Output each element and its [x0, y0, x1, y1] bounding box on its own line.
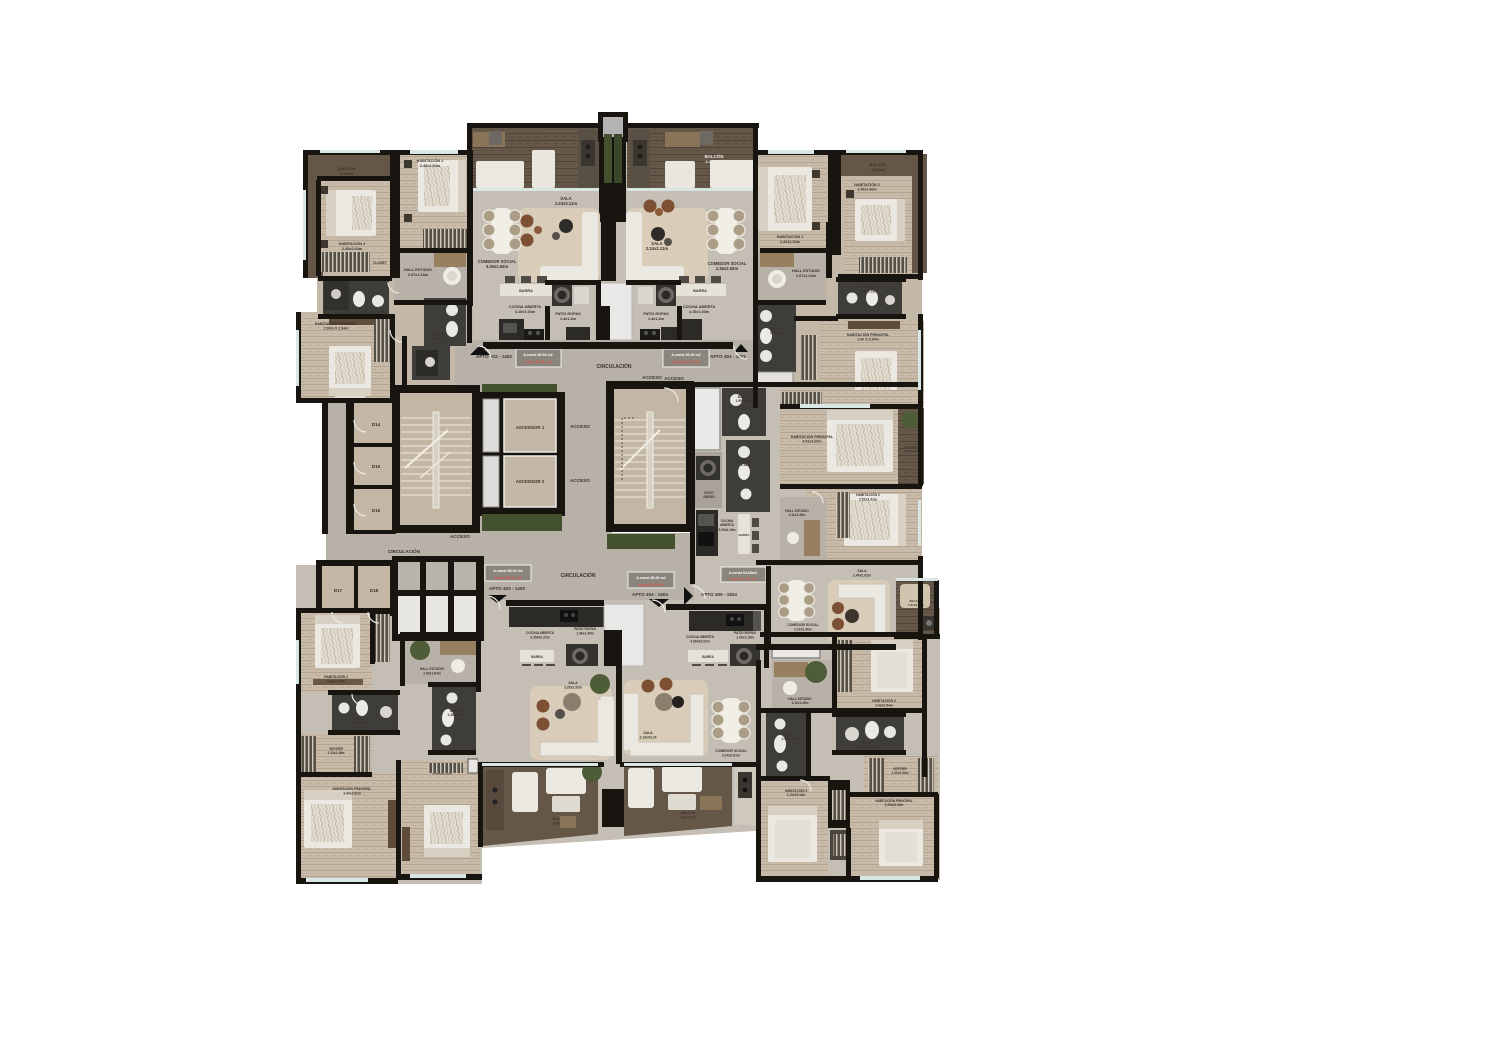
svg-text:A.const 64.63m2: A.const 64.63m2: [729, 571, 757, 575]
svg-text:4.80x2.15: 4.80x2.15: [680, 815, 695, 819]
svg-text:2.43x2.54m: 2.43x2.54m: [875, 703, 893, 707]
svg-text:APTO 403 - 1403: APTO 403 - 1403: [489, 586, 525, 591]
svg-text:2.90m X 2.94m: 2.90m X 2.94m: [324, 327, 349, 331]
svg-text:4.36m2: 4.36m2: [340, 171, 354, 176]
svg-text:2.35x1.31m: 2.35x1.31m: [859, 745, 876, 749]
svg-text:HABITACIÓN PRINCIPAL: HABITACIÓN PRINCIPAL: [791, 434, 834, 439]
svg-text:HALL ESTUDIO: HALL ESTUDIO: [792, 269, 820, 273]
svg-text:HABITACIÓN PRINCIPAL: HABITACIÓN PRINCIPAL: [315, 321, 358, 326]
svg-text:3.24x2.61m: 3.24x2.61m: [722, 753, 740, 757]
svg-text:A.priv 82.25 m2: A.priv 82.25 m2: [638, 583, 664, 587]
svg-text:2.24x2.11m: 2.24x2.11m: [646, 246, 668, 251]
svg-text:A.const 85.26 m2: A.const 85.26 m2: [636, 576, 665, 580]
svg-text:CIRCULACIÓN: CIRCULACIÓN: [388, 547, 421, 554]
svg-text:ACCESO: ACCESO: [570, 424, 590, 429]
svg-text:ACCESO: ACCESO: [642, 375, 662, 380]
svg-text:HABITACIÓN 2: HABITACIÓN 2: [856, 492, 880, 497]
svg-text:1.46x1.48m: 1.46x1.48m: [576, 631, 594, 635]
svg-text:BALCÓN: BALCÓN: [705, 154, 724, 159]
svg-text:BARRA: BARRA: [531, 655, 543, 659]
svg-text:2.40x2.02m: 2.40x2.02m: [853, 573, 871, 577]
svg-text:SALA: SALA: [568, 681, 578, 685]
svg-text:4.15x1.93m: 4.15x1.93m: [689, 310, 710, 314]
svg-text:COMEDOR SOCIAL: COMEDOR SOCIAL: [787, 623, 818, 627]
svg-text:PATIO ROPAS: PATIO ROPAS: [555, 312, 581, 316]
svg-text:2.40x2.54m: 2.40x2.54m: [420, 164, 441, 168]
svg-text:BAÑO P: BAÑO P: [861, 284, 875, 289]
svg-text:CLOSET: CLOSET: [373, 261, 388, 265]
svg-text:HABITACIÓN 2: HABITACIÓN 2: [872, 698, 896, 703]
svg-text:SALA: SALA: [857, 569, 867, 573]
svg-text:BARRA: BARRA: [739, 533, 751, 537]
svg-text:ACCESO: ACCESO: [664, 376, 684, 381]
svg-text:2.67x1.63m: 2.67x1.63m: [408, 273, 429, 277]
svg-text:HABITACIÓN PRINCIPAL: HABITACIÓN PRINCIPAL: [847, 332, 890, 337]
svg-text:COCINA ABIERTA: COCINA ABIERTA: [683, 305, 716, 309]
svg-text:A.priv 80.21. m2: A.priv 80.21. m2: [524, 360, 551, 364]
svg-text:CIRCULACIÓN: CIRCULACIÓN: [561, 571, 596, 579]
svg-text:3.36x2.55m: 3.36x2.55m: [486, 264, 509, 269]
svg-text:3.05x2.19m: 3.05x2.19m: [718, 528, 735, 532]
svg-text:2.35x1.29m: 2.35x1.29m: [349, 721, 366, 725]
svg-text:BARRA: BARRA: [702, 655, 714, 659]
svg-text:2.54x1.64m: 2.54x1.64m: [423, 671, 441, 675]
svg-text:2.40x2.64m: 2.40x2.64m: [342, 247, 363, 251]
svg-text:COCINA ABIERTA: COCINA ABIERTA: [509, 305, 542, 309]
svg-text:1.40x1.18m: 1.40x1.18m: [736, 635, 754, 639]
svg-text:2.64x2.45m: 2.64x2.45m: [327, 679, 345, 683]
svg-text:COMEDOR SOCIAL: COMEDOR SOCIAL: [715, 749, 746, 753]
svg-text:2.51x2.41m: 2.51x2.41m: [859, 497, 877, 501]
svg-text:D15: D15: [372, 464, 381, 469]
svg-text:BALCÓN: BALCÓN: [681, 810, 696, 815]
svg-text:BARRA: BARRA: [693, 289, 707, 293]
svg-text:1.33x2.48m: 1.33x2.48m: [327, 751, 344, 755]
svg-text:HABITACIÓN PRINCIPAL: HABITACIÓN PRINCIPAL: [333, 786, 372, 791]
svg-text:3.36x1.25m: 3.36x1.25m: [859, 289, 877, 293]
svg-text:A.const 88.43 m2: A.const 88.43 m2: [493, 569, 522, 573]
svg-text:3.26x2.52m: 3.26x2.52m: [564, 685, 582, 689]
svg-text:ROPAS: ROPAS: [703, 495, 714, 499]
svg-text:CIRCULACIÓN: CIRCULACIÓN: [597, 362, 632, 370]
svg-text:2.11x3.45m: 2.11x3.45m: [789, 513, 806, 517]
svg-text:HABITACIÓN 2: HABITACIÓN 2: [324, 674, 348, 679]
svg-text:3.35x02.22m: 3.35x02.22m: [530, 635, 550, 639]
svg-text:D17: D17: [334, 588, 343, 593]
svg-text:A.const 82.94 m2: A.const 82.94 m2: [523, 353, 552, 357]
svg-text:BARRA: BARRA: [519, 289, 533, 293]
svg-text:SALA: SALA: [643, 731, 653, 735]
svg-text:A.const 83.40 m2: A.const 83.40 m2: [671, 353, 700, 357]
svg-text:2.30x1.30m: 2.30x1.30m: [781, 737, 798, 741]
svg-text:D14: D14: [372, 422, 381, 427]
svg-text:4.06x02.02m: 4.06x02.02m: [690, 639, 710, 643]
svg-text:HABITACIÓN 2: HABITACIÓN 2: [777, 234, 804, 239]
svg-text:2.76x1.33: 2.76x1.33: [431, 337, 445, 341]
svg-text:2.19x03.24: 2.19x03.24: [640, 735, 657, 739]
svg-text:1.4x1.4m: 1.4x1.4m: [648, 317, 665, 321]
svg-text:2.90 X 2.94m: 2.90 X 2.94m: [857, 338, 879, 342]
svg-text:1.95x1.63m: 1.95x1.63m: [735, 399, 752, 403]
svg-text:1.29x2.42m: 1.29x2.42m: [891, 771, 908, 775]
svg-text:A.priv 80.27. m2: A.priv 80.27. m2: [672, 360, 699, 364]
svg-text:A.priv 61.87. m2: A.priv 61.87. m2: [729, 577, 756, 581]
svg-text:APTO 405 - 1504: APTO 405 - 1504: [701, 592, 737, 597]
svg-text:4.15x1.93m: 4.15x1.93m: [515, 310, 536, 314]
svg-text:2.36x2.55m: 2.36x2.55m: [716, 266, 739, 271]
svg-text:APTO 404 - 1404: APTO 404 - 1404: [632, 592, 668, 597]
svg-text:4.46x2.33: 4.46x2.33: [706, 160, 723, 164]
svg-text:A.priv 85.44. m2: A.priv 85.44. m2: [494, 576, 521, 580]
svg-text:2.67x1.63m: 2.67x1.63m: [796, 274, 817, 278]
svg-text:ASCENSOR 1: ASCENSOR 1: [516, 425, 545, 430]
svg-text:2.24x3.11m: 2.24x3.11m: [555, 201, 577, 206]
svg-text:ACCESO: ACCESO: [570, 478, 590, 483]
svg-text:APTO 402 - 1402: APTO 402 - 1402: [476, 354, 512, 359]
svg-text:APTO 401 - 1401: APTO 401 - 1401: [710, 354, 746, 359]
svg-text:ASCENSOR 2: ASCENSOR 2: [516, 479, 545, 484]
svg-text:1.30x1.35m: 1.30x1.35m: [447, 713, 464, 717]
svg-text:2.49x2.46m: 2.49x2.46m: [857, 188, 876, 192]
svg-text:2.36x1.33: 2.36x1.33: [741, 463, 755, 467]
svg-text:D16: D16: [372, 508, 381, 513]
svg-text:4.38m2: 4.38m2: [871, 167, 885, 172]
svg-text:ABIERTA: ABIERTA: [720, 523, 735, 527]
svg-text:D18: D18: [370, 588, 379, 593]
svg-text:2.22x2.40m: 2.22x2.40m: [794, 627, 812, 631]
svg-text:HABITACIÓN 3: HABITACIÓN 3: [854, 182, 879, 187]
svg-text:3.44x3.31m: 3.44x3.31m: [343, 791, 361, 795]
svg-text:2.19x03.16m: 2.19x03.16m: [787, 793, 806, 797]
svg-text:1.4x1.4m: 1.4x1.4m: [560, 317, 577, 321]
svg-text:4.01x2.60m: 4.01x2.60m: [802, 440, 821, 444]
svg-text:3.39x02.20m: 3.39x02.20m: [885, 803, 904, 807]
svg-text:ACCESO: ACCESO: [450, 534, 470, 539]
svg-text:2.11x1.45m: 2.11x1.45m: [792, 701, 809, 705]
svg-text:2.30x1.33: 2.30x1.33: [770, 331, 784, 335]
svg-text:2.42x2.54m: 2.42x2.54m: [780, 240, 801, 244]
svg-text:HALL ESTUDIO: HALL ESTUDIO: [404, 268, 432, 272]
svg-text:HABITACIÓN 2: HABITACIÓN 2: [417, 158, 444, 163]
svg-text:2.70x0.9m: 2.70x0.9m: [904, 449, 919, 453]
svg-text:PATIO ROPAS: PATIO ROPAS: [643, 312, 669, 316]
svg-text:HABITACIÓN 2: HABITACIÓN 2: [339, 241, 366, 246]
